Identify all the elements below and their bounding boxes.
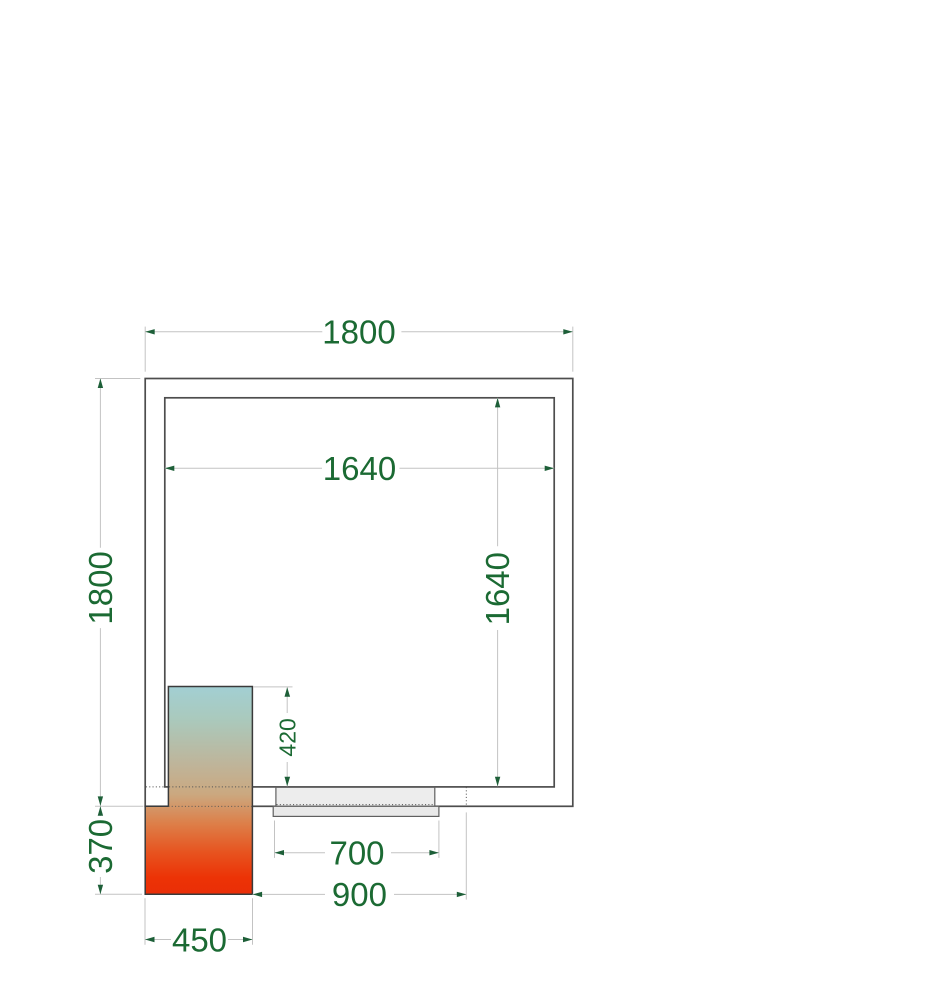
svg-text:1640: 1640 [479,552,516,625]
svg-text:900: 900 [332,876,387,913]
svg-text:450: 450 [172,921,227,958]
svg-text:1800: 1800 [82,551,119,624]
svg-text:1640: 1640 [323,450,396,487]
svg-text:700: 700 [329,835,384,872]
svg-text:370: 370 [82,819,119,874]
svg-text:420: 420 [274,718,300,756]
svg-text:1800: 1800 [322,314,395,351]
